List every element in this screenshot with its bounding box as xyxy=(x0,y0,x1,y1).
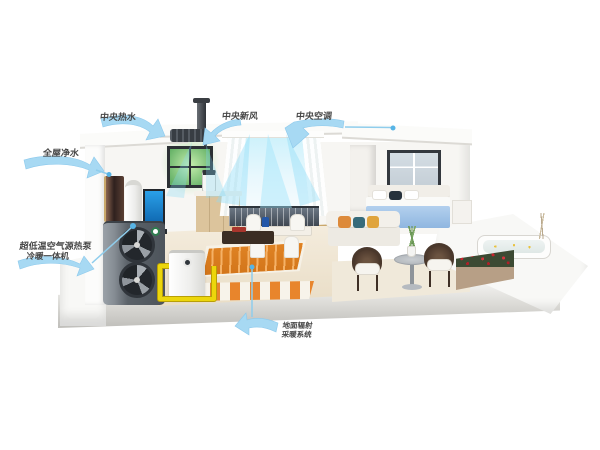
left-exterior-wall xyxy=(85,145,105,305)
sofa-pillow-mustard xyxy=(367,216,379,228)
dining-chair-4 xyxy=(284,236,299,258)
heat-pump-fan-hub-2 xyxy=(134,277,140,283)
water-softener-tank xyxy=(125,180,142,222)
window-valance xyxy=(222,131,324,138)
water-purifier-cabinet xyxy=(104,176,124,222)
dining-chair-1 xyxy=(246,214,261,231)
fresh-air-ceiling-unit xyxy=(170,129,208,142)
label-heat-pump-line2: 冷暖一体机 xyxy=(18,251,91,261)
garden-figurine xyxy=(536,213,548,239)
label-floor-heating: 地面辐射 采暖系统 xyxy=(281,322,313,339)
rug xyxy=(190,281,314,301)
label-central-air-conditioning: 中央空调 xyxy=(295,111,332,121)
sofa-pillow-teal xyxy=(353,217,365,228)
label-water-purification: 全屋净水 xyxy=(42,148,79,158)
roof-duct-cap xyxy=(193,98,210,103)
dining-table-decor-blue xyxy=(262,217,269,227)
hydraulic-module-logo xyxy=(183,258,192,267)
bed-pillow-white-1 xyxy=(372,190,387,200)
coffee-table xyxy=(222,231,274,244)
balcony-railing xyxy=(229,206,319,226)
outdoor-tub-water xyxy=(483,240,545,253)
patio-table-stem xyxy=(410,262,414,286)
patio-table-base xyxy=(402,284,422,290)
label-heat-pump-line1: 超低温空气源热泵 xyxy=(19,241,92,251)
sofa-pillow-orange xyxy=(338,216,351,228)
label-heat-pump: 超低温空气源热泵 冷暖一体机 xyxy=(18,241,92,261)
patio-chair-left xyxy=(352,247,386,293)
heat-pump-fan-hub-1 xyxy=(134,242,140,248)
wall-mounted-unit xyxy=(202,170,216,192)
patio-table-vase xyxy=(407,246,416,257)
nightstand xyxy=(452,200,472,224)
bed-pillow-white-2 xyxy=(404,190,419,200)
label-floor-heating-line2: 采暖系统 xyxy=(281,331,312,340)
label-central-hot-water: 中央热水 xyxy=(99,112,136,122)
label-central-fresh-air: 中央新风 xyxy=(221,111,258,121)
patio-chair-right xyxy=(424,243,458,289)
coffee-table-decor xyxy=(232,227,246,232)
kitchen-counter xyxy=(194,191,242,196)
heat-pump-logo-badge xyxy=(151,227,160,236)
dining-chair-2 xyxy=(290,214,305,231)
house-cutaway-illustration: 中央热水 中央新风 中央空调 全屋净水 超低温空气源热泵 冷暖一体机 地面辐射 … xyxy=(0,0,600,450)
sofa-seat xyxy=(328,226,400,246)
bed-pillow-dark xyxy=(389,191,402,200)
